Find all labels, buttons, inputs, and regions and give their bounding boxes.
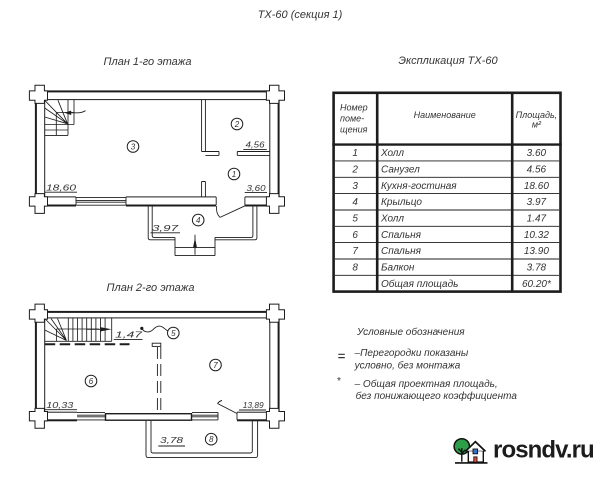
svg-text:3: 3 [352, 181, 358, 192]
svg-text:13.90: 13.90 [524, 246, 549, 257]
svg-text:3: 3 [131, 142, 136, 151]
svg-text:условно, без монтажа: условно, без монтажа [354, 359, 461, 371]
svg-text:2: 2 [234, 120, 240, 129]
svg-text:–Перегородки показаны: –Перегородки показаны [354, 348, 469, 359]
svg-text:3.60: 3.60 [527, 148, 547, 159]
svg-text:18.60: 18.60 [524, 181, 549, 192]
svg-text:Крыльцо: Крыльцо [381, 197, 422, 208]
svg-text:3,60: 3,60 [247, 183, 266, 193]
svg-text:Условные обозначения: Условные обозначения [356, 326, 465, 338]
svg-text:3.78: 3.78 [527, 263, 547, 274]
svg-text:ТХ-60 (секция 1): ТХ-60 (секция 1) [258, 9, 343, 21]
svg-text:План 2-го этажа: План 2-го этажа [107, 282, 195, 294]
svg-text:7: 7 [352, 246, 358, 257]
svg-text:8: 8 [352, 263, 358, 274]
svg-text:без понижающего коэффициента: без понижающего коэффициента [356, 390, 518, 402]
svg-text:Номер: Номер [340, 102, 368, 112]
svg-text:13,89: 13,89 [243, 400, 264, 410]
svg-text:4,56: 4,56 [246, 140, 265, 150]
svg-text:План 1-го этажа: План 1-го этажа [104, 56, 192, 68]
svg-text:rosndv.ru: rosndv.ru [493, 437, 594, 464]
svg-text:поме-: поме- [340, 113, 364, 123]
svg-text:10,33: 10,33 [46, 400, 73, 410]
svg-text:1: 1 [232, 170, 236, 179]
svg-text:щения: щения [340, 124, 368, 134]
svg-text:Площадь,: Площадь, [516, 110, 558, 120]
svg-text:6: 6 [352, 230, 358, 241]
svg-text:3,97: 3,97 [152, 223, 178, 233]
svg-text:– Общая проектная площадь,: – Общая проектная площадь, [354, 378, 498, 390]
svg-text:60.20*: 60.20* [522, 279, 552, 290]
svg-text:4: 4 [196, 216, 201, 225]
svg-text:4: 4 [352, 197, 358, 208]
svg-text:1.47: 1.47 [527, 214, 547, 225]
svg-text:Экспликация ТХ-60: Экспликация ТХ-60 [398, 55, 498, 67]
svg-text:м²: м² [532, 120, 542, 130]
svg-text:5: 5 [171, 329, 176, 338]
svg-text:1,47: 1,47 [115, 330, 142, 340]
svg-text:Спальня: Спальня [381, 246, 422, 257]
svg-text:7: 7 [213, 361, 218, 370]
svg-text:Наименование: Наименование [414, 110, 476, 120]
svg-text:Кухня-гостиная: Кухня-гостиная [381, 181, 457, 192]
svg-text:Спальня: Спальня [381, 230, 422, 241]
svg-text:4.56: 4.56 [527, 165, 547, 176]
svg-text:3,78: 3,78 [160, 435, 183, 445]
svg-text:Балкон: Балкон [381, 263, 415, 274]
svg-text:Холл: Холл [380, 214, 404, 225]
svg-text:2: 2 [351, 165, 358, 176]
svg-text:Холл: Холл [380, 148, 404, 159]
svg-text:8: 8 [209, 435, 214, 444]
svg-text:Санузел: Санузел [381, 165, 420, 176]
svg-text:18,60: 18,60 [46, 182, 76, 192]
svg-text:Общая площадь: Общая площадь [381, 278, 458, 290]
svg-text:6: 6 [89, 377, 94, 386]
svg-text:10.32: 10.32 [524, 230, 549, 241]
svg-text:1: 1 [352, 148, 358, 159]
svg-text:5: 5 [352, 214, 358, 225]
svg-text:3.97: 3.97 [527, 197, 547, 208]
